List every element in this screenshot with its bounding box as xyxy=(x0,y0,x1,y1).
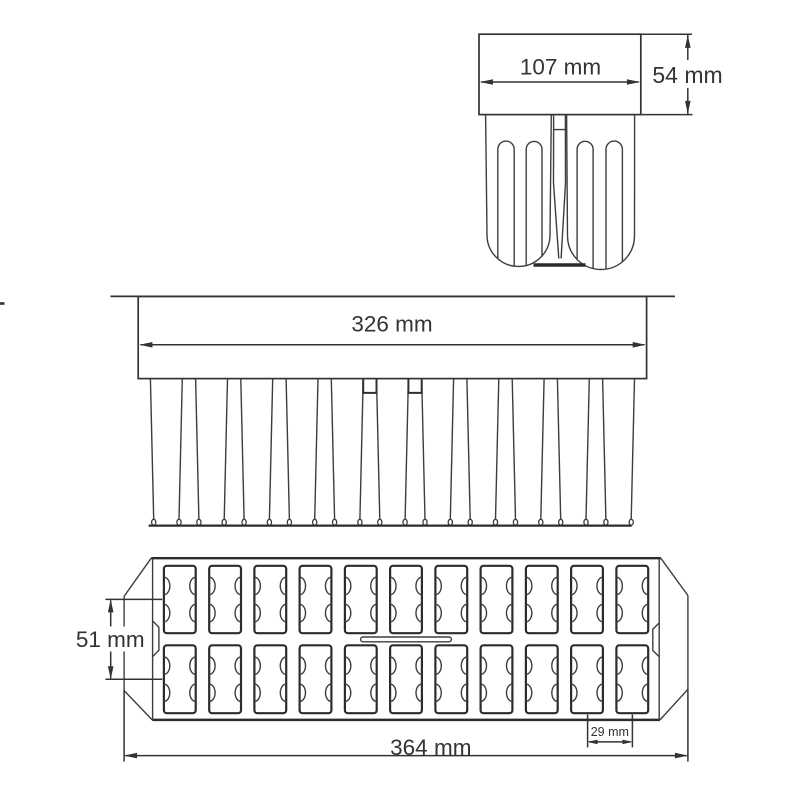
svg-text:54 mm: 54 mm xyxy=(652,62,722,88)
svg-text:364 mm: 364 mm xyxy=(390,735,471,760)
svg-text:107 mm: 107 mm xyxy=(520,54,601,79)
svg-text:29 mm: 29 mm xyxy=(591,725,629,739)
svg-text:326 mm: 326 mm xyxy=(351,312,432,337)
svg-text:51 mm: 51 mm xyxy=(76,627,145,652)
